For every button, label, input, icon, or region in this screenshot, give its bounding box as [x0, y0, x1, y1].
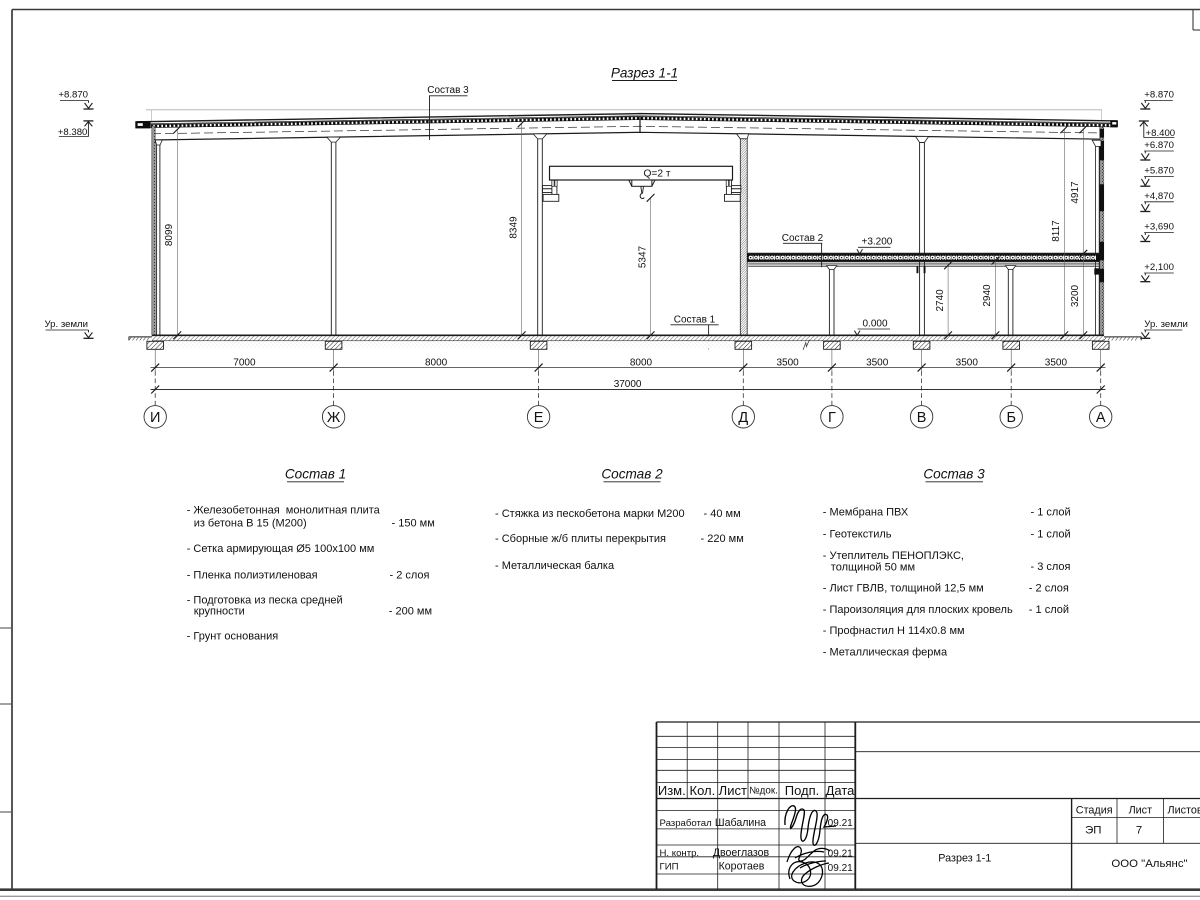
svg-text:- Геотекстиль: - Геотекстиль [823, 528, 892, 540]
svg-text:8000: 8000 [425, 358, 448, 369]
svg-text:+8.400: +8.400 [1146, 128, 1176, 139]
svg-text:3500: 3500 [1045, 358, 1068, 369]
svg-text:Разработал: Разработал [660, 818, 712, 829]
svg-text:7000: 7000 [233, 358, 256, 369]
svg-text:- Утеплитель ПЕНОПЛЭКС,: - Утеплитель ПЕНОПЛЭКС, [823, 550, 964, 562]
svg-text:09.21: 09.21 [828, 818, 853, 829]
svg-text:3500: 3500 [776, 358, 799, 369]
svg-text:Состав 2: Состав 2 [601, 467, 663, 482]
svg-text:37000: 37000 [614, 379, 642, 390]
svg-text:- 1 слой: - 1 слой [1029, 604, 1069, 616]
svg-text:Ур. земли: Ур. земли [1144, 319, 1188, 330]
svg-text:+5.870: +5.870 [1144, 166, 1174, 177]
svg-text:- 200 мм: - 200 мм [389, 605, 432, 617]
svg-text:- 2 слоя: - 2 слоя [390, 569, 430, 581]
svg-text:- 3 слоя: - 3 слоя [1031, 561, 1071, 573]
svg-text:Шабалина: Шабалина [715, 817, 766, 829]
svg-text:+4,870: +4,870 [1144, 191, 1174, 202]
svg-text:- Пленка полиэтиленовая: - Пленка полиэтиленовая [187, 569, 318, 581]
svg-text:Состав 3: Состав 3 [427, 85, 469, 96]
svg-text:4917: 4917 [1070, 181, 1081, 204]
svg-text:- Сборные ж/б плиты перекрытия: - Сборные ж/б плиты перекрытия [495, 533, 666, 545]
svg-text:- Сетка армирующая Ø5 100х100: - Сетка армирующая Ø5 100х100 мм [187, 543, 375, 555]
svg-text:- Профнастил Н 114х0.8 мм: - Профнастил Н 114х0.8 мм [823, 625, 965, 637]
svg-text:из бетона В 15 (М200): из бетона В 15 (М200) [194, 517, 307, 529]
svg-text:Кол.: Кол. [690, 783, 716, 798]
svg-text:№док.: №док. [749, 786, 778, 797]
svg-text:Разрез 1-1: Разрез 1-1 [611, 66, 678, 81]
svg-text:Ур. земли: Ур. земли [44, 319, 88, 330]
svg-text:3200: 3200 [1070, 284, 1081, 307]
svg-text:3500: 3500 [866, 358, 889, 369]
svg-text:3500: 3500 [956, 358, 979, 369]
svg-text:Г: Г [828, 410, 836, 426]
svg-text:- 1 слой: - 1 слой [1031, 507, 1071, 519]
svg-text:09.21: 09.21 [828, 863, 853, 874]
svg-text:Состав 1: Состав 1 [285, 467, 346, 482]
svg-text:Состав 2: Состав 2 [782, 233, 824, 244]
svg-text:09.21: 09.21 [828, 849, 853, 860]
svg-text:ЭП: ЭП [1085, 824, 1101, 836]
svg-text:Q=2 т: Q=2 т [643, 168, 670, 179]
svg-text:- Пароизоляция для плоских кро: - Пароизоляция для плоских кровель [823, 604, 1013, 616]
svg-text:ООО "Альянс": ООО "Альянс" [1111, 858, 1187, 870]
svg-text:- 40 мм: - 40 мм [704, 508, 741, 520]
svg-text:8349: 8349 [508, 216, 519, 239]
svg-text:А: А [1096, 410, 1106, 426]
svg-text:8099: 8099 [164, 223, 175, 246]
svg-text:2740: 2740 [935, 289, 946, 312]
svg-text:Изм.: Изм. [658, 783, 686, 798]
svg-text:+8.870: +8.870 [58, 90, 88, 101]
svg-text:- Лист ГВЛВ, толщиной 12,5 мм: - Лист ГВЛВ, толщиной 12,5 мм [823, 583, 984, 595]
svg-text:- Металлическая ферма: - Металлическая ферма [823, 647, 948, 659]
svg-text:Лист: Лист [719, 783, 747, 798]
svg-text:толщиной 50 мм: толщиной 50 мм [831, 562, 915, 574]
svg-text:- Металлическая балка: - Металлическая балка [495, 560, 615, 572]
svg-text:- Грунт основания: - Грунт основания [187, 631, 279, 643]
svg-text:+6.870: +6.870 [1144, 140, 1174, 151]
svg-text:2940: 2940 [982, 284, 993, 307]
svg-text:Состав 3: Состав 3 [923, 467, 985, 482]
svg-text:Ж: Ж [327, 410, 341, 426]
svg-text:- 150 мм: - 150 мм [392, 517, 435, 529]
svg-text:5347: 5347 [637, 245, 648, 268]
svg-text:ГИП: ГИП [660, 861, 679, 872]
svg-text:Подп.: Подп. [785, 783, 820, 798]
svg-text:+3,690: +3,690 [1144, 222, 1174, 233]
svg-text:Двоеглазов: Двоеглазов [713, 847, 770, 859]
svg-text:+8.870: +8.870 [1144, 90, 1174, 101]
svg-text:И: И [150, 410, 160, 426]
svg-text:+3.200: +3.200 [862, 236, 893, 247]
svg-text:Б: Б [1006, 410, 1016, 426]
svg-text:+2,100: +2,100 [1144, 262, 1174, 273]
svg-text:крупности: крупности [194, 605, 245, 617]
svg-text:Дата: Дата [826, 783, 856, 798]
svg-text:Разрез 1-1: Разрез 1-1 [938, 853, 991, 865]
svg-text:8117: 8117 [1051, 220, 1062, 242]
svg-text:- Железобетонная монолитная п: - Железобетонная монолитная плита [187, 505, 381, 517]
svg-text:Лист: Лист [1129, 805, 1153, 817]
svg-text:Д: Д [738, 410, 748, 426]
svg-text:- 220 мм: - 220 мм [701, 533, 744, 545]
svg-text:0.000: 0.000 [863, 318, 888, 329]
svg-text:В: В [917, 410, 927, 426]
svg-text:- 1 слой: - 1 слой [1031, 528, 1071, 540]
svg-text:Состав 1: Состав 1 [674, 314, 716, 325]
svg-text:7: 7 [1136, 824, 1142, 836]
svg-text:Н. контр.: Н. контр. [660, 848, 700, 859]
svg-text:Е: Е [534, 410, 544, 426]
svg-text:Листов: Листов [1168, 805, 1200, 817]
svg-text:- Мембрана ПВХ: - Мембрана ПВХ [823, 507, 909, 519]
svg-text:Коротаев: Коротаев [719, 860, 765, 872]
svg-text:+8.380: +8.380 [58, 127, 88, 138]
svg-text:- 2 слоя: - 2 слоя [1029, 583, 1069, 595]
svg-text:Стадия: Стадия [1076, 805, 1113, 817]
svg-text:- Стяжка из пескобетона марки: - Стяжка из пескобетона марки М200 [495, 508, 685, 520]
svg-text:8000: 8000 [630, 358, 653, 369]
